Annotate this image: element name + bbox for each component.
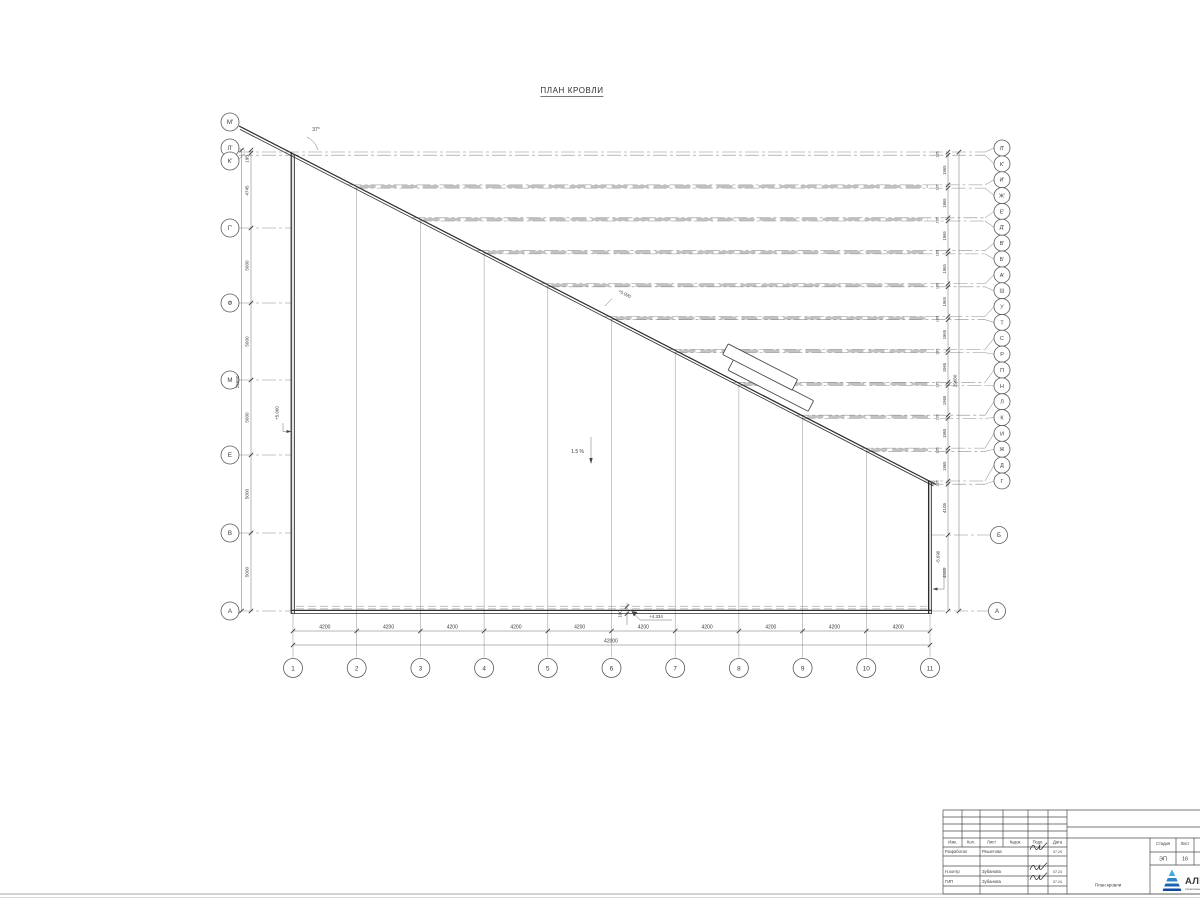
dim-label: 1965 bbox=[942, 296, 947, 306]
axis-leader bbox=[985, 287, 994, 291]
elev-leader bbox=[605, 299, 612, 307]
dim-label: 1965 bbox=[942, 428, 947, 438]
dim-label: 195 bbox=[936, 151, 940, 157]
company-logo-subtext: строительная компания bbox=[1185, 888, 1200, 891]
dim-label: 195 bbox=[936, 217, 940, 223]
company-logo-icon bbox=[1164, 884, 1180, 887]
roof-ridge bbox=[240, 129, 934, 486]
dim-label: 5000 bbox=[245, 488, 250, 499]
sheet-value: 16 bbox=[1182, 857, 1188, 863]
axis-leader bbox=[985, 275, 994, 284]
dim-label: 1965 bbox=[942, 362, 947, 372]
axis-leader bbox=[985, 221, 994, 227]
axis-bubble-right-label: Г bbox=[1001, 479, 1004, 485]
axis-leader bbox=[985, 307, 994, 317]
company-logo-icon bbox=[1163, 889, 1182, 892]
axis-bubble-right-label: Л bbox=[1000, 400, 1004, 406]
axis-bubble-right-label: Ж' bbox=[999, 194, 1005, 200]
dim-label: 195 bbox=[936, 283, 940, 289]
angle-arc bbox=[307, 137, 318, 150]
axis-bubble-left-label: Ф bbox=[228, 300, 233, 307]
dim-label: 4105 bbox=[942, 502, 947, 513]
axis-bubble-bottom-label: 3 bbox=[419, 665, 423, 672]
axis-bubble-bottom-label: 11 bbox=[927, 665, 934, 672]
axis-bubble-left-label: Е bbox=[228, 452, 232, 459]
axis-bubble-left-label: Г' bbox=[228, 225, 233, 232]
company-logo-icon bbox=[1169, 870, 1175, 877]
axis-bubble-left-label: Л' bbox=[227, 145, 232, 152]
dim-label: 1965 bbox=[942, 461, 947, 471]
titleblock-date: 07.24 bbox=[1053, 880, 1062, 884]
axis-bubble-right-label: Б bbox=[997, 533, 1001, 539]
dim-label: 4500 bbox=[942, 567, 947, 578]
dim-label: 5000 bbox=[245, 260, 250, 271]
dim-label: 29680 bbox=[953, 374, 958, 387]
dim-label: 4200 bbox=[447, 625, 458, 631]
axis-bubble-right-label: Д bbox=[1000, 463, 1004, 469]
axis-leader bbox=[985, 418, 994, 419]
dim-label: 195 bbox=[936, 414, 940, 420]
axis-leader bbox=[985, 211, 994, 217]
dim-label: 4200 bbox=[383, 625, 394, 631]
axis-bubble-right-label: А bbox=[995, 609, 999, 615]
axis-bubble-right-label: У bbox=[1000, 305, 1004, 311]
axis-bubble-right-label: П bbox=[1000, 368, 1004, 374]
axis-bubble-right-label: Ж bbox=[1000, 447, 1005, 453]
axis-bubble-right-label: А' bbox=[1000, 273, 1005, 279]
axis-leader bbox=[985, 155, 994, 164]
axis-leader bbox=[985, 449, 994, 451]
titleblock-header: Подп. bbox=[1033, 840, 1044, 845]
stage-label: Стадия bbox=[1156, 841, 1170, 846]
axis-bubble-left-label: В bbox=[228, 530, 232, 537]
dim-label: 195 bbox=[936, 447, 940, 453]
dim-label: 4200 bbox=[829, 625, 840, 631]
axis-bubble-right-label: И bbox=[1000, 431, 1004, 437]
elevation-label: -5.690 bbox=[936, 550, 941, 563]
dim-label: 1965 bbox=[942, 263, 947, 273]
roof-ridge bbox=[239, 126, 936, 485]
axis-leader bbox=[985, 180, 994, 185]
leader-arrow bbox=[933, 588, 938, 591]
titleblock-header: Дата bbox=[1053, 840, 1063, 845]
company-logo-icon bbox=[1166, 878, 1178, 882]
titleblock-role: Н.контр bbox=[945, 869, 960, 874]
dim-label: 4200 bbox=[701, 625, 712, 631]
titleblock-header: №док. bbox=[1010, 840, 1022, 845]
axis-leader bbox=[985, 465, 994, 481]
axis-bubble-right-label: И' bbox=[1000, 178, 1005, 184]
dim-label: 195 bbox=[936, 316, 940, 322]
axis-bubble-bottom-label: 9 bbox=[801, 665, 805, 672]
dim-label: 195 bbox=[936, 184, 940, 190]
axis-leader bbox=[985, 320, 994, 323]
axis-leader bbox=[985, 338, 994, 349]
axis-leader bbox=[985, 243, 994, 251]
dim-label: 195 bbox=[936, 250, 940, 256]
titleblock-date: 07.24 bbox=[1053, 870, 1062, 874]
axis-bubble-bottom-label: 10 bbox=[863, 665, 871, 672]
titleblock-name: Зубанова bbox=[982, 879, 1002, 884]
axis-bubble-right-label: С bbox=[1000, 336, 1004, 342]
titleblock-role: ГИП bbox=[945, 879, 953, 884]
axis-leader bbox=[985, 188, 994, 195]
dim-label: 4200 bbox=[893, 625, 904, 631]
dim-label: 100 bbox=[618, 610, 623, 618]
roof-plan-drawing: Л'К'И'Ж'Е'Д'В'Б'А'ШУТСРПНЛКИЖДГМ'Л'К'Г'Ф… bbox=[0, 0, 1200, 900]
angle-label: 37° bbox=[312, 127, 320, 133]
axis-leader bbox=[985, 254, 994, 259]
axis-bubble-right-label: В' bbox=[1000, 241, 1005, 247]
dim-label: 195 bbox=[936, 382, 940, 388]
axis-bubble-bottom-label: 7 bbox=[673, 665, 677, 672]
axis-bubble-bottom-label: 8 bbox=[737, 665, 741, 672]
elevation-label: +5.000 bbox=[275, 406, 280, 420]
axis-bubble-right-label: Н bbox=[1000, 384, 1004, 390]
dim-label: 4200 bbox=[574, 625, 585, 631]
titleblock-header: Лист bbox=[987, 840, 996, 845]
leader-arrow bbox=[589, 458, 592, 464]
dim-label: 4200 bbox=[510, 625, 521, 631]
axis-bubble-bottom-label: 5 bbox=[546, 665, 550, 672]
axis-bubble-bottom-label: 6 bbox=[610, 665, 614, 672]
dim-label: 1965 bbox=[942, 231, 947, 241]
dim-label: 195 bbox=[936, 480, 940, 486]
dim-label: 42000 bbox=[604, 639, 618, 645]
axis-bubble-right-label: К' bbox=[1000, 162, 1004, 168]
dim-label: 195 bbox=[936, 349, 940, 355]
dim-label: 4745 bbox=[245, 185, 250, 196]
elevation-label: +5.090 bbox=[618, 288, 633, 299]
axis-leader bbox=[985, 402, 994, 415]
dim-label: 1965 bbox=[942, 395, 947, 405]
titleblock-doc-title: План кровли bbox=[1095, 883, 1122, 888]
axis-leader bbox=[985, 353, 994, 355]
dim-label: 5000 bbox=[245, 336, 250, 347]
axis-bubble-left-label: М bbox=[227, 377, 232, 384]
axis-bubble-left-label: М' bbox=[227, 119, 233, 126]
axis-bubble-right-label: Р bbox=[1000, 352, 1004, 358]
dim-label: 5000 bbox=[245, 412, 250, 423]
axis-leader bbox=[985, 433, 994, 448]
titleblock-header: Кол. bbox=[967, 840, 975, 845]
axis-leader bbox=[985, 481, 994, 484]
axis-bubble-right-label: Л' bbox=[1000, 146, 1005, 152]
dim-label: 4200 bbox=[765, 625, 776, 631]
dim-label: 4200 bbox=[319, 625, 330, 631]
axis-bubble-bottom-label: 2 bbox=[355, 665, 359, 672]
axis-bubble-right-label: Е' bbox=[1000, 209, 1005, 215]
drawing-sheet: ПЛАН КРОВЛИ Л'К'И'Ж'Е'Д'В'Б'А'ШУТСРПНЛКИ… bbox=[0, 0, 1200, 900]
company-logo-text: АЛЬЯ bbox=[1185, 876, 1200, 887]
dim-label: 5000 bbox=[245, 566, 250, 577]
dim-label: 29680 bbox=[235, 375, 240, 388]
dim-label: 1965 bbox=[942, 165, 947, 175]
titleblock-name: Зубанова bbox=[982, 869, 1002, 874]
axis-leader bbox=[985, 370, 994, 382]
titleblock-role: Разработал bbox=[945, 849, 968, 854]
axis-bubble-bottom-label: 4 bbox=[482, 665, 486, 672]
axis-bubble-bottom-label: 1 bbox=[291, 665, 295, 672]
stage-value: ЭП bbox=[1159, 857, 1167, 863]
titleblock-date: 07.24 bbox=[1053, 850, 1062, 854]
dim-label: 4200 bbox=[638, 625, 649, 631]
dim-label: 1965 bbox=[942, 198, 947, 208]
axis-bubble-right-label: Д' bbox=[1000, 225, 1005, 231]
axis-leader bbox=[985, 148, 994, 152]
axis-bubble-right-label: Ш bbox=[1000, 289, 1005, 295]
axis-bubble-right-label: Б' bbox=[1000, 257, 1005, 263]
dim-label: 195 bbox=[245, 155, 250, 163]
titleblock-header: Изм. bbox=[948, 840, 957, 845]
titleblock-name: Решетова bbox=[982, 849, 1002, 854]
elevation-label: +4.334 bbox=[649, 614, 663, 619]
slope-label: 1.5 % bbox=[571, 449, 584, 455]
sheet-label: Лист bbox=[1181, 841, 1190, 846]
axis-bubble-left-label: К' bbox=[228, 158, 233, 165]
dim-label: 1965 bbox=[942, 329, 947, 339]
